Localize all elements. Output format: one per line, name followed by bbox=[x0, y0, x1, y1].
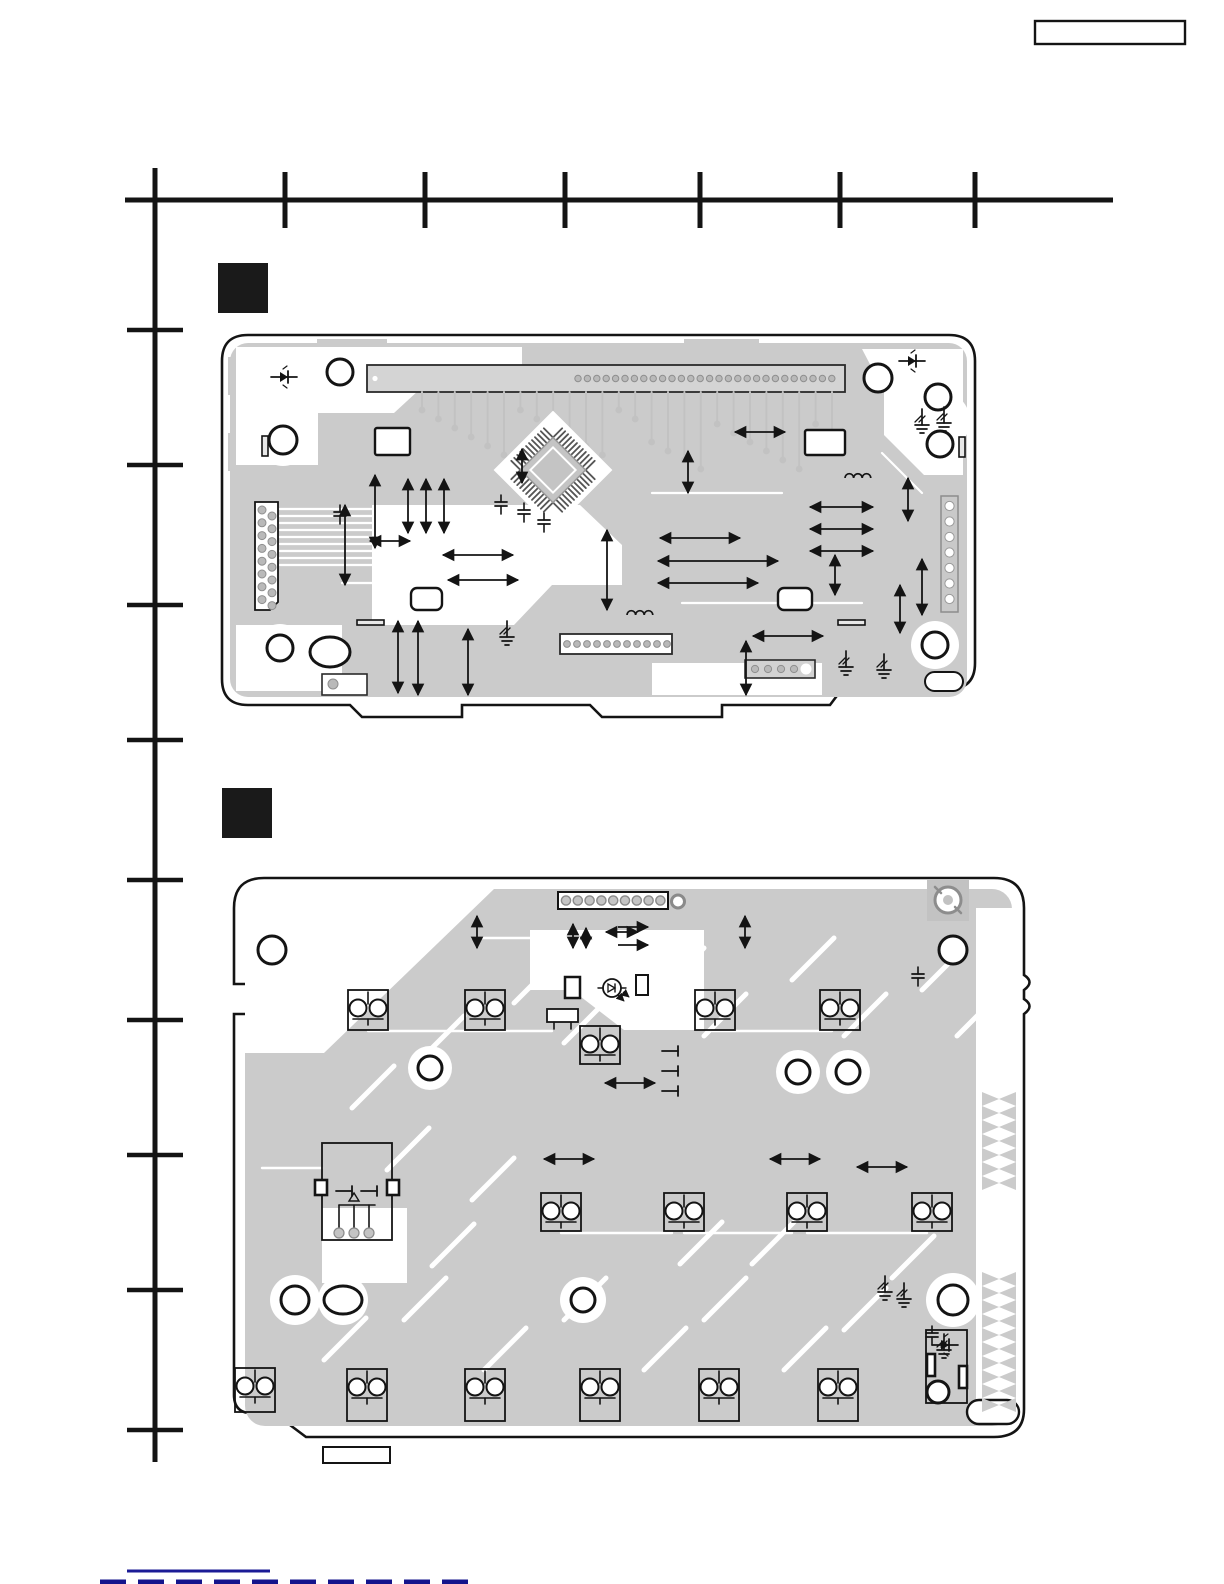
tact-switch-contact bbox=[721, 1379, 738, 1396]
mounting-hole bbox=[836, 1060, 860, 1084]
connector-pad bbox=[656, 896, 665, 905]
connector-pad bbox=[594, 375, 600, 381]
fanout-via bbox=[681, 457, 688, 464]
connector-pad bbox=[258, 583, 266, 591]
mounting-hole bbox=[281, 1286, 309, 1314]
tact-switch-contact bbox=[602, 1036, 619, 1053]
section-marker-2 bbox=[222, 788, 272, 838]
jack-pin-pad bbox=[349, 1228, 359, 1238]
connector-pad bbox=[706, 375, 712, 381]
smd-component bbox=[375, 428, 410, 455]
fuse bbox=[927, 1354, 935, 1376]
fanout-via bbox=[419, 407, 426, 414]
edge-pad bbox=[228, 433, 236, 471]
fanout-via bbox=[517, 407, 524, 414]
connector-pad bbox=[664, 641, 671, 648]
section-marker-1 bbox=[218, 263, 268, 313]
connector-pad bbox=[688, 375, 694, 381]
routing-clearance bbox=[322, 1208, 407, 1283]
fanout-via bbox=[468, 434, 475, 441]
fanout-via bbox=[763, 448, 770, 455]
model-number-box bbox=[1035, 21, 1185, 44]
smd-component bbox=[547, 1009, 578, 1022]
fanout-via bbox=[779, 457, 786, 464]
tact-switch-contact bbox=[582, 1036, 599, 1053]
tact-switch-contact bbox=[934, 1203, 951, 1220]
tact-switch-contact bbox=[666, 1203, 683, 1220]
connector-pad bbox=[609, 896, 618, 905]
connector-pad bbox=[372, 376, 377, 381]
mounting-hole bbox=[927, 1381, 949, 1403]
connector-pad bbox=[603, 375, 609, 381]
connector-pad bbox=[672, 895, 685, 908]
jack-tab bbox=[387, 1180, 399, 1195]
tact-switch-contact bbox=[467, 1379, 484, 1396]
tact-switch-contact bbox=[237, 1378, 254, 1395]
connector-pad bbox=[790, 665, 797, 672]
chip-component bbox=[838, 620, 865, 625]
mounting-hole bbox=[939, 936, 967, 964]
connector-pad bbox=[258, 519, 266, 527]
tact-switch-contact bbox=[543, 1203, 560, 1220]
connector-pad bbox=[258, 557, 266, 565]
connector-pad bbox=[644, 896, 653, 905]
edge-pad bbox=[228, 357, 236, 395]
mounting-hole bbox=[269, 426, 297, 454]
connector-pad bbox=[751, 665, 758, 672]
mounting-hole bbox=[786, 1060, 810, 1084]
connector-pad bbox=[597, 896, 606, 905]
tact-switch-contact bbox=[840, 1379, 857, 1396]
connector-pad bbox=[819, 375, 825, 381]
connector-pad bbox=[594, 641, 601, 648]
connector-pad bbox=[644, 641, 651, 648]
tact-switch-contact bbox=[822, 1000, 839, 1017]
connector-pad bbox=[352, 682, 356, 686]
mounting-hole bbox=[938, 1285, 968, 1315]
connector-pad bbox=[800, 375, 806, 381]
tact-switch-contact bbox=[257, 1378, 274, 1395]
connector-pad bbox=[791, 375, 797, 381]
connector-pad bbox=[654, 641, 661, 648]
tact-switch-contact bbox=[914, 1203, 931, 1220]
connector-pad bbox=[620, 896, 629, 905]
mounting-hole bbox=[925, 384, 951, 410]
fanout-via bbox=[484, 443, 491, 450]
connector-pad bbox=[573, 896, 582, 905]
connector-pad bbox=[575, 375, 581, 381]
tact-switch-contact bbox=[350, 1000, 367, 1017]
screw-pad bbox=[927, 879, 969, 921]
connector-pad bbox=[697, 375, 703, 381]
pcb2-group bbox=[234, 878, 1030, 1437]
fanout-via bbox=[615, 407, 622, 414]
connector-pad bbox=[945, 532, 954, 541]
fuse bbox=[959, 1366, 967, 1388]
smd-component bbox=[636, 975, 648, 995]
connector-pad bbox=[258, 544, 266, 552]
connector-pad bbox=[801, 664, 812, 675]
mounting-hole bbox=[418, 1056, 442, 1080]
pcb1-group bbox=[222, 335, 975, 717]
tact-switch-contact bbox=[467, 1000, 484, 1017]
connector-pad bbox=[669, 375, 675, 381]
fanout-via bbox=[599, 452, 606, 459]
connector-pad bbox=[659, 375, 665, 381]
pcb-board-1-main bbox=[222, 335, 975, 717]
fanout-via bbox=[697, 466, 704, 473]
chip-component bbox=[357, 620, 384, 625]
mounting-hole bbox=[922, 632, 948, 658]
tact-switch-contact bbox=[370, 1000, 387, 1017]
tact-switch-contact bbox=[582, 1379, 599, 1396]
led-body bbox=[603, 979, 621, 997]
tact-switch-contact bbox=[487, 1000, 504, 1017]
fanout-via bbox=[812, 421, 819, 428]
screw-hole-center bbox=[943, 895, 953, 905]
connector-pad bbox=[782, 375, 788, 381]
service-manual-page bbox=[0, 0, 1224, 1584]
mounting-hole bbox=[258, 936, 286, 964]
fanout-via bbox=[796, 466, 803, 473]
connector-pad bbox=[612, 375, 618, 381]
connector-pad bbox=[268, 576, 276, 584]
connector-pad bbox=[614, 641, 621, 648]
connector-pad bbox=[716, 375, 722, 381]
connector-pad bbox=[829, 375, 835, 381]
connector-pad bbox=[763, 375, 769, 381]
connector-pad bbox=[753, 375, 759, 381]
connector-pad bbox=[764, 665, 771, 672]
connector-pad bbox=[632, 896, 641, 905]
connector-pad bbox=[622, 375, 628, 381]
smd-component bbox=[565, 977, 580, 998]
connector-pad bbox=[634, 641, 641, 648]
connector-pad bbox=[631, 375, 637, 381]
pcb-board-2-buttons bbox=[234, 878, 1030, 1437]
fanout-via bbox=[533, 416, 540, 423]
connector-pad bbox=[777, 665, 784, 672]
connector-pad bbox=[945, 517, 954, 526]
connector-pad bbox=[268, 550, 276, 558]
connector-pad bbox=[810, 375, 816, 381]
mounting-hole bbox=[864, 364, 892, 392]
tact-switch-contact bbox=[697, 1000, 714, 1017]
connector-pad bbox=[744, 375, 750, 381]
tact-switch-contact bbox=[789, 1203, 806, 1220]
connector-pad bbox=[268, 538, 276, 546]
fanout-via bbox=[435, 416, 442, 423]
oval-hole bbox=[324, 1286, 362, 1314]
fanout-via bbox=[648, 439, 655, 446]
connector-pad bbox=[945, 563, 954, 572]
smd-component bbox=[805, 430, 845, 455]
tact-switch-contact bbox=[820, 1379, 837, 1396]
tact-switch-contact bbox=[842, 1000, 859, 1017]
fanout-via bbox=[665, 448, 672, 455]
connector-pad bbox=[258, 506, 266, 514]
fanout-via bbox=[714, 421, 721, 428]
connector-pad bbox=[772, 375, 778, 381]
connector-pad bbox=[268, 589, 276, 597]
connector-pad bbox=[584, 641, 591, 648]
connector-pad bbox=[678, 375, 684, 381]
chip-component bbox=[262, 436, 268, 456]
fanout-via bbox=[632, 416, 639, 423]
tact-switch-contact bbox=[602, 1379, 619, 1396]
jack-pin-pad bbox=[334, 1228, 344, 1238]
connector-pad bbox=[945, 579, 954, 588]
connector-pad bbox=[268, 563, 276, 571]
mounting-hole bbox=[571, 1288, 595, 1312]
connector-pad bbox=[945, 594, 954, 603]
connector-pad bbox=[258, 596, 266, 604]
fanout-via bbox=[730, 430, 737, 437]
connector-pad bbox=[945, 548, 954, 557]
smd-component bbox=[778, 588, 812, 610]
tact-switch-contact bbox=[809, 1203, 826, 1220]
connector-pad bbox=[624, 641, 631, 648]
connector-pad bbox=[574, 641, 581, 648]
mounting-hole bbox=[927, 431, 953, 457]
tact-switch-contact bbox=[369, 1379, 386, 1396]
fanout-via bbox=[451, 425, 458, 432]
connector-pad bbox=[268, 602, 276, 610]
connector-pad bbox=[561, 896, 570, 905]
mounting-hole bbox=[327, 359, 353, 385]
tact-switch-contact bbox=[717, 1000, 734, 1017]
smd-component bbox=[411, 588, 442, 610]
pill-slot bbox=[925, 672, 963, 691]
connector-pad bbox=[585, 896, 594, 905]
connector-pad bbox=[328, 679, 338, 689]
jack-pin-pad bbox=[364, 1228, 374, 1238]
connector-pad bbox=[258, 570, 266, 578]
oval-hole bbox=[310, 637, 350, 667]
tact-switch-contact bbox=[563, 1203, 580, 1220]
connector-pad bbox=[604, 641, 611, 648]
jack-tab bbox=[315, 1180, 327, 1195]
tact-switch-contact bbox=[686, 1203, 703, 1220]
connector-pad bbox=[564, 641, 571, 648]
connector-pad bbox=[268, 512, 276, 520]
tact-switch-contact bbox=[701, 1379, 718, 1396]
tact-switch-contact bbox=[349, 1379, 366, 1396]
connector-pad bbox=[268, 525, 276, 533]
connector-pad bbox=[584, 375, 590, 381]
edge-pad bbox=[684, 339, 759, 349]
connector-pad bbox=[945, 501, 954, 510]
connector-pad bbox=[258, 532, 266, 540]
connector-pad bbox=[650, 375, 656, 381]
pcb-diagram-canvas bbox=[0, 0, 1224, 1584]
board-label-box bbox=[323, 1447, 390, 1463]
tact-switch-contact bbox=[487, 1379, 504, 1396]
connector-pad bbox=[735, 375, 741, 381]
mounting-hole bbox=[267, 635, 293, 661]
fanout-via bbox=[747, 439, 754, 446]
connector-pad bbox=[641, 375, 647, 381]
connector-pad bbox=[725, 375, 731, 381]
chip-component bbox=[959, 437, 965, 457]
